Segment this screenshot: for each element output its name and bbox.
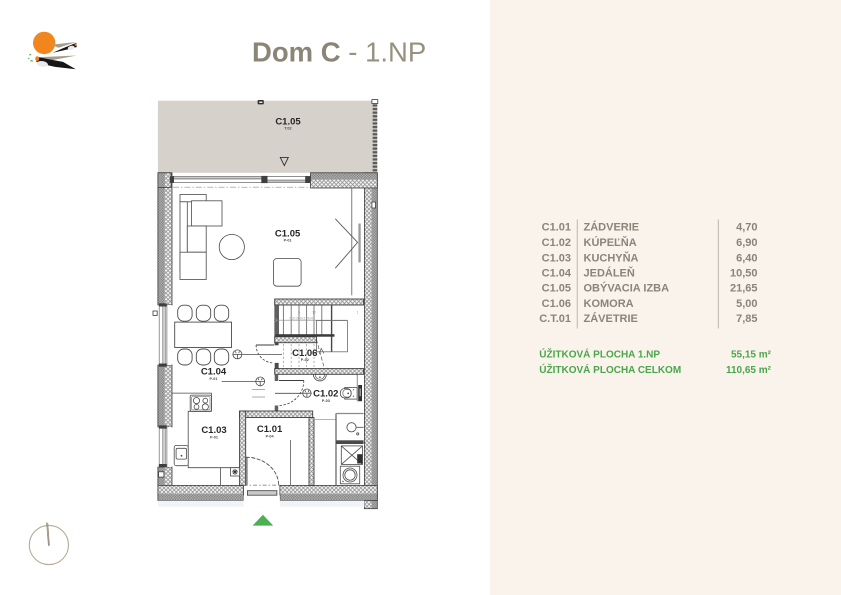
svg-text:P-04: P-04 bbox=[266, 434, 275, 438]
svg-text:5: 5 bbox=[298, 311, 300, 315]
svg-text:6,40: 6,40 bbox=[736, 252, 757, 264]
svg-text:110,65 m²: 110,65 m² bbox=[726, 365, 772, 376]
svg-text:C1.06: C1.06 bbox=[292, 348, 317, 359]
svg-text:55,15 m²: 55,15 m² bbox=[731, 350, 772, 361]
svg-text:21,65: 21,65 bbox=[730, 283, 758, 295]
svg-text:OBÝVACIA IZBA: OBÝVACIA IZBA bbox=[584, 282, 670, 295]
svg-text:ZÁDVERIE: ZÁDVERIE bbox=[584, 221, 640, 234]
svg-text:C1.05: C1.05 bbox=[542, 283, 571, 295]
svg-text:1: 1 bbox=[283, 311, 285, 315]
svg-text:Dom C - 1.NP: Dom C - 1.NP bbox=[252, 37, 426, 68]
svg-text:C1.03: C1.03 bbox=[542, 252, 571, 264]
svg-text:P-03: P-03 bbox=[322, 399, 330, 403]
svg-text:C.T.01: C.T.01 bbox=[539, 313, 571, 325]
svg-text:ZÁVETRIE: ZÁVETRIE bbox=[584, 312, 638, 325]
svg-text:C1.01: C1.01 bbox=[542, 222, 571, 234]
svg-text:7,85: 7,85 bbox=[736, 313, 757, 325]
svg-text:P-01: P-01 bbox=[210, 435, 218, 439]
svg-text:C1.04: C1.04 bbox=[542, 268, 572, 280]
svg-text:JEDÁLEŇ: JEDÁLEŇ bbox=[584, 267, 635, 280]
svg-text:ÚŽITKOVÁ PLOCHA CELKOM: ÚŽITKOVÁ PLOCHA CELKOM bbox=[539, 363, 681, 376]
svg-text:C1.02: C1.02 bbox=[542, 237, 571, 249]
svg-text:P-01: P-01 bbox=[284, 239, 292, 243]
svg-text:6,90: 6,90 bbox=[736, 237, 757, 249]
svg-text:5,00: 5,00 bbox=[736, 298, 757, 310]
svg-text:P-01: P-01 bbox=[209, 377, 217, 381]
svg-text:4,70: 4,70 bbox=[736, 222, 757, 234]
svg-text:C1.06: C1.06 bbox=[542, 298, 571, 310]
svg-text:T.02: T.02 bbox=[284, 126, 291, 130]
svg-text:KOMORA: KOMORA bbox=[584, 298, 634, 310]
svg-text:KUCHYŇA: KUCHYŇA bbox=[584, 251, 639, 264]
svg-text:10,50: 10,50 bbox=[730, 268, 758, 280]
svg-text:P-02: P-02 bbox=[301, 358, 309, 362]
svg-text:10: 10 bbox=[312, 311, 316, 315]
svg-text:ÚŽITKOVÁ PLOCHA 1.NP: ÚŽITKOVÁ PLOCHA 1.NP bbox=[539, 348, 660, 361]
svg-text:Sch:260x175x47: Sch:260x175x47 bbox=[289, 317, 314, 321]
svg-text:KÚPEĽŇA: KÚPEĽŇA bbox=[584, 236, 637, 249]
svg-text:1: 1 bbox=[357, 311, 359, 315]
